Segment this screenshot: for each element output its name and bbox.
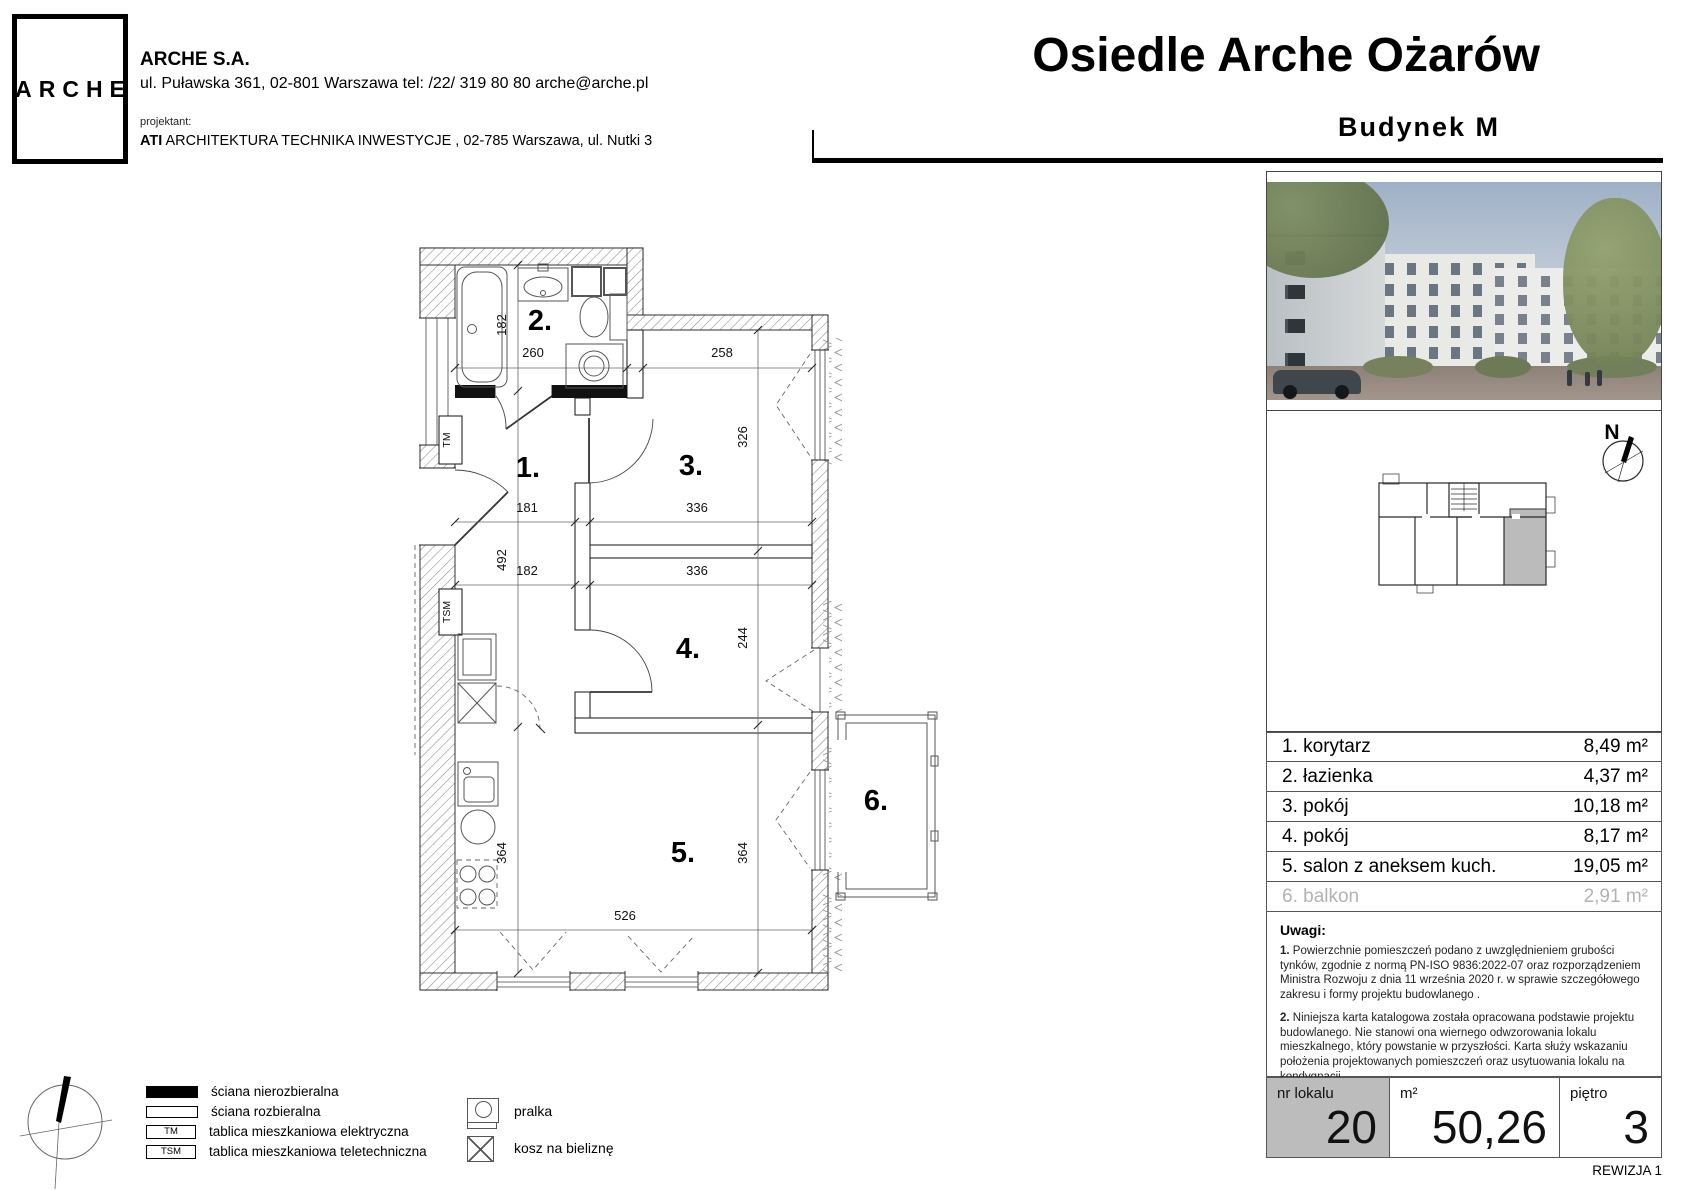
unit-number-cell: nr lokalu 20 [1266,1077,1390,1158]
tm-box-icon: TM [146,1125,196,1139]
room-name: 4. pokój [1267,826,1349,848]
room-area-table: 1. korytarz 8,49 m² 2. łazienka 4,37 m² … [1266,732,1662,912]
dim-hall-width-b: 182 [516,563,538,578]
north-needle [1621,436,1634,463]
room-area: 19,05 m² [1573,856,1661,878]
dim-room3-width: 336 [686,500,708,515]
table-row-balcony: 6. balkon 2,91 m² [1266,882,1662,912]
legend-label: ściana rozbieralna [211,1104,321,1119]
catalog-card-page: ARCHE ARCHE S.A. ul. Puławska 361, 02-80… [0,0,1684,1190]
room-area: 8,49 m² [1584,736,1661,758]
washing-machine [566,344,623,388]
room-name: 6. balkon [1267,886,1359,908]
exterior-walls [420,248,828,990]
designer-line: ATI ARCHITEKTURA TECHNIKA INWESTYCJE , 0… [140,132,652,150]
laundry-basket-icon [467,1136,494,1162]
key-plan-stairs [1449,483,1479,517]
orientation-graphics: N [1267,411,1661,730]
washbasin [518,264,568,301]
dim-room4-height: 244 [735,627,750,649]
key-plan [1379,474,1555,593]
svg-text:TSM: TSM [441,601,453,623]
kitchen-sink [458,762,498,806]
page-title: Osiedle Arche Ożarów [1032,28,1540,83]
windows [419,318,829,991]
room-label-2: 2. [528,305,552,337]
solid-wall-icon [146,1086,198,1098]
fixtures: TM TSM [439,264,627,908]
legend: ściana nierozbieralna ściana rozbieralna… [146,1084,427,1159]
north-label: N [1604,421,1619,444]
table-row: 3. pokój 10,18 m² [1266,792,1662,822]
company-address: ul. Puławska 361, 02-801 Warszawa tel: /… [140,74,652,94]
legend-item-solid-wall: ściana nierozbieralna [146,1084,427,1099]
arche-logo: ARCHE [12,14,128,164]
summary-strip: nr lokalu 20 m² 50,26 piętro 3 [1266,1077,1662,1158]
notes-box: Uwagi: 1. Powierzchnie pomieszczeń podan… [1266,912,1662,1077]
legend-label: tablica mieszkaniowa elektryczna [209,1124,409,1139]
svg-text:TM: TM [441,432,453,447]
dim-salon-height-left: 364 [494,842,509,864]
room-label-3: 3. [679,450,703,482]
north-arrow: N [1603,421,1643,482]
header-divider [812,158,1663,163]
interior-walls [455,330,812,733]
revision-label: REWIZJA 1 [1266,1163,1662,1178]
dim-hall-width-a: 181 [516,500,538,515]
room-name: 1. korytarz [1267,736,1371,758]
dim-room3-top: 258 [711,345,733,360]
bathroom-door [506,396,552,429]
note-item: 1. Powierzchnie pomieszczeń podano z uwz… [1280,944,1648,1003]
room-label-6: 6. [864,785,888,817]
tsm-board: TSM [439,589,462,635]
render-bush [1475,356,1531,378]
tm-board: TM [439,416,462,464]
dim-salon-height-right: 364 [735,842,750,864]
washer-icon [467,1098,499,1123]
floor-cell: piętro 3 [1560,1077,1662,1158]
room-label-5: 5. [671,837,695,869]
area-value: 50,26 [1432,1100,1547,1154]
dim-room4-width: 336 [686,563,708,578]
area-cell: m² 50,26 [1390,1077,1560,1158]
table-row: 5. salon z aneksem kuch. 19,05 m² [1266,852,1662,882]
removable-wall-icon [146,1106,198,1118]
dim-salon-width: 526 [614,908,636,923]
render-person [1585,372,1590,386]
designer-name: ATI [140,133,162,149]
dim-room3-height: 326 [735,426,750,448]
dimension-lines: 182 260 258 326 181 336 492 182 336 244 … [451,261,816,977]
floor-label: piętro [1570,1085,1608,1102]
entrance-door [455,492,508,545]
floor-plan: TM TSM [400,225,945,995]
room-area: 2,91 m² [1584,886,1661,908]
fridge [458,634,496,680]
sink-bowl [461,810,495,844]
key-plan-highlighted-unit [1504,509,1546,585]
building-render-box [1266,171,1662,411]
room-label-4: 4. [676,633,700,665]
header-divider-vertical [812,130,814,158]
legend-label: tablica mieszkaniowa teletechniczna [209,1144,427,1159]
table-row: 4. pokój 8,17 m² [1266,822,1662,852]
dim-bath-height: 182 [494,314,509,336]
washer-icon-base [467,1123,497,1129]
legend-item-tsm: TSM tablica mieszkaniowa teletechniczna [146,1144,427,1159]
table-row: 2. łazienka 4,37 m² [1266,762,1662,792]
render-person [1567,370,1572,386]
laundry-basket-label: kosz na bieliznę [514,1140,614,1156]
designer-label: projektant: [140,116,652,130]
unit-number-value: 20 [1326,1100,1377,1154]
cooktop [457,860,497,908]
company-block: ARCHE S.A. ul. Puławska 361, 02-801 Wars… [140,48,652,150]
room-area: 4,37 m² [1584,766,1661,788]
building-subtitle: Budynek M [1338,112,1500,143]
room-label-1: 1. [516,452,540,484]
bathroom-cabinet [604,268,626,295]
notes-title: Uwagi: [1280,922,1648,938]
legend-item-tm: TM tablica mieszkaniowa elektryczna [146,1124,427,1139]
compass-icon [0,1000,140,1190]
table-row: 1. korytarz 8,49 m² [1266,732,1662,762]
toilet [580,294,627,340]
floor-value: 3 [1623,1100,1649,1154]
arche-logo-text: ARCHE [8,76,132,103]
note-item: 2. Niniejsza karta katalogowa została op… [1280,1011,1648,1085]
room-name: 5. salon z aneksem kuch. [1267,856,1496,878]
dim-bath-width: 260 [522,345,544,360]
room-name: 2. łazienka [1267,766,1373,788]
legend-label: ściana nierozbieralna [211,1084,339,1099]
room-area: 8,17 m² [1584,826,1661,848]
designer-rest: ARCHITEKTURA TECHNIKA INWESTYCJE , 02-78… [162,133,652,149]
balcony-door [766,650,814,712]
washer-label: pralka [514,1103,552,1119]
laundry-basket [458,683,545,733]
render-tree-right [1563,198,1661,366]
company-name: ARCHE S.A. [140,48,652,72]
dim-hall-height: 492 [494,549,509,571]
building-render-image [1267,182,1661,400]
render-person [1597,370,1602,386]
tsm-box-icon: TSM [146,1145,196,1159]
room-name: 3. pokój [1267,796,1349,818]
room-area: 10,18 m² [1573,796,1661,818]
legend-item-removable-wall: ściana rozbieralna [146,1104,427,1119]
doors [415,354,814,972]
orientation-box: N [1266,411,1662,732]
area-label: m² [1400,1085,1418,1102]
render-bush [1363,356,1433,378]
bathroom-shaft [572,267,601,296]
render-car [1273,370,1361,394]
